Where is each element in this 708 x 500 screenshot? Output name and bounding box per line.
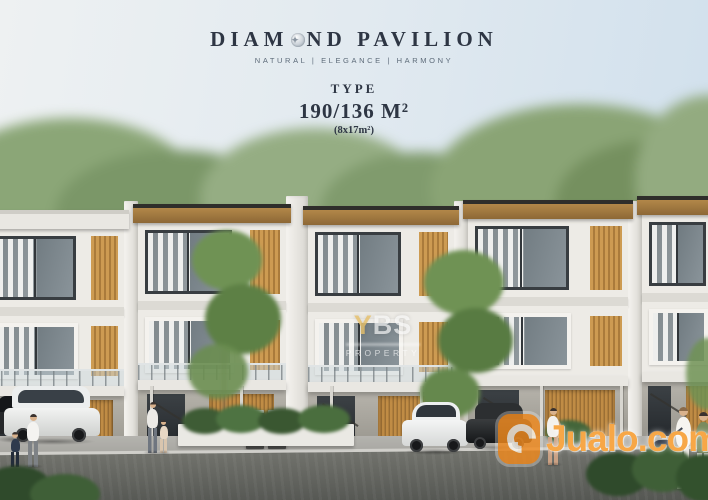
car-window xyxy=(18,390,84,403)
brand-title: DIAMND PAVILION xyxy=(0,27,708,52)
brand-tagline: NATURAL | ELEGANCE | HARMONY xyxy=(0,56,708,65)
sapling-foliage xyxy=(192,230,262,290)
person-legs xyxy=(160,439,167,453)
white-hatchback xyxy=(402,402,468,452)
jualo-watermark: Jualo.com xyxy=(498,414,708,464)
sapling-foliage xyxy=(188,344,248,399)
person-torso xyxy=(11,439,20,452)
pedestrian-woman xyxy=(26,414,40,467)
person-head xyxy=(150,402,156,408)
person-legs xyxy=(11,452,19,467)
car-wheel xyxy=(72,428,86,442)
pedestrian-child xyxy=(159,420,168,453)
pedestrian-child xyxy=(10,432,20,467)
person-head xyxy=(12,432,18,438)
property-watermark: YBS PROPERTY xyxy=(338,310,428,358)
car-wheel xyxy=(410,439,423,452)
brand-part2: ND PAVILION xyxy=(307,27,498,51)
brand-part1: DIAM xyxy=(210,27,288,51)
car-window xyxy=(416,405,456,417)
type-size: 190/136 M² xyxy=(0,99,708,124)
person-legs xyxy=(148,428,157,453)
diamond-icon xyxy=(291,33,305,47)
type-plot-dimensions: (8x17m²) xyxy=(0,125,708,136)
sapling-foliage xyxy=(438,308,513,373)
person-torso xyxy=(27,422,39,441)
watermark-divider xyxy=(346,343,420,346)
watermark-bs: BS xyxy=(373,310,413,340)
car-wheel xyxy=(447,439,460,452)
sapling-foliage xyxy=(686,338,708,410)
car-wheel xyxy=(474,437,486,449)
jualo-text: Jualo.com xyxy=(546,418,708,460)
person-head xyxy=(161,420,166,425)
header: DIAMND PAVILION NATURAL | ELEGANCE | HAR… xyxy=(0,27,708,136)
property-poster: DIAMND PAVILION NATURAL | ELEGANCE | HAR… xyxy=(0,0,708,500)
sapling-foliage xyxy=(424,250,504,315)
jualo-logo-icon xyxy=(498,414,540,464)
person-head xyxy=(30,414,37,421)
person-legs xyxy=(28,441,38,467)
person-torso xyxy=(147,409,158,428)
watermark-y: Y xyxy=(354,310,373,340)
person-torso xyxy=(160,426,168,439)
bush xyxy=(298,405,350,433)
pedestrian-man xyxy=(146,402,159,453)
type-label: TYPE xyxy=(0,81,708,97)
watermark-ybs: YBS xyxy=(338,310,428,341)
watermark-property: PROPERTY xyxy=(338,348,428,358)
